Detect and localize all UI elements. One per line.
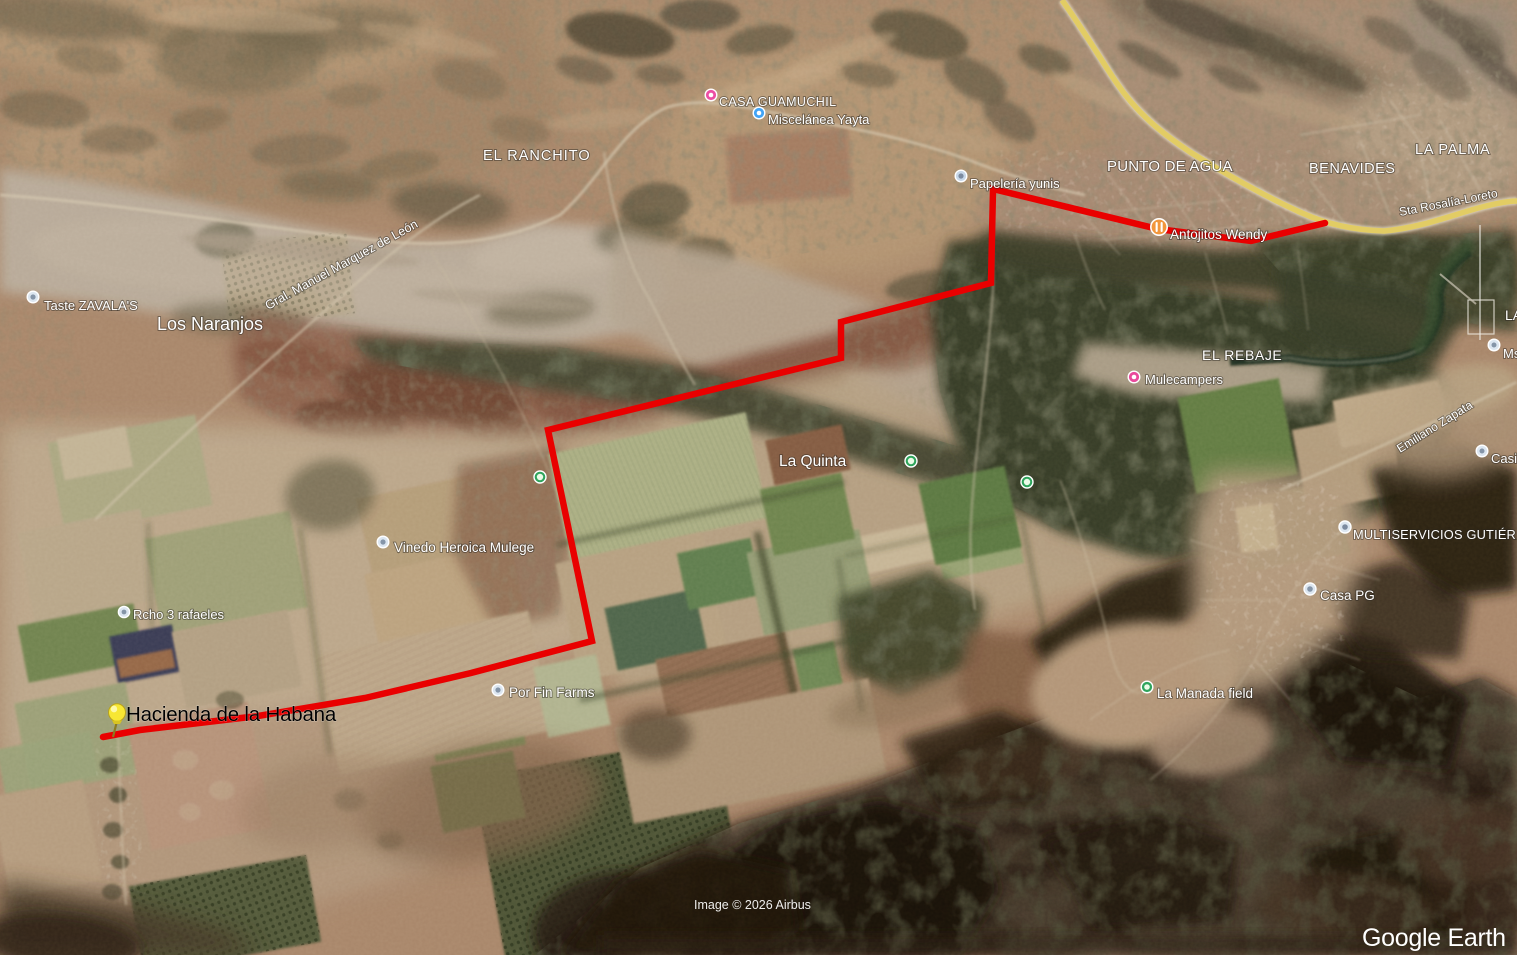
svg-text:MULTISERVICIOS GUTIÉR: MULTISERVICIOS GUTIÉR [1353, 527, 1516, 542]
svg-text:Google Earth: Google Earth [1362, 924, 1506, 952]
svg-text:LA: LA [1505, 307, 1517, 323]
svg-text:Por Fin Farms: Por Fin Farms [509, 685, 595, 700]
svg-text:Rcho 3 rafaeles: Rcho 3 rafaeles [133, 607, 225, 622]
svg-text:Miscelánea Yayta: Miscelánea Yayta [768, 112, 870, 127]
svg-text:Antojitos Wendy: Antojitos Wendy [1170, 227, 1268, 242]
svg-text:BENAVIDES: BENAVIDES [1309, 161, 1395, 177]
svg-text:Vinedo Heroica Mulege: Vinedo Heroica Mulege [394, 540, 534, 555]
svg-text:Hacienda de la Habana: Hacienda de la Habana [126, 703, 337, 726]
svg-text:La Manada field: La Manada field [1157, 686, 1253, 701]
svg-text:CASA GUAMUCHIL: CASA GUAMUCHIL [719, 95, 836, 109]
svg-text:EL RANCHITO: EL RANCHITO [483, 148, 591, 164]
svg-text:LA PALMA: LA PALMA [1415, 142, 1490, 158]
svg-text:Image © 2026 Airbus: Image © 2026 Airbus [694, 898, 811, 912]
svg-text:Mulecampers: Mulecampers [1145, 372, 1224, 387]
svg-text:Taste ZAVALA'S: Taste ZAVALA'S [44, 298, 138, 313]
svg-text:Casi: Casi [1491, 451, 1517, 466]
svg-text:Casa PG: Casa PG [1320, 588, 1375, 603]
svg-text:EL REBAJE: EL REBAJE [1202, 347, 1282, 363]
svg-text:La Quinta: La Quinta [779, 453, 847, 470]
svg-text:Papelería yunis: Papelería yunis [970, 176, 1060, 191]
svg-text:Ms: Ms [1503, 346, 1517, 361]
svg-text:PUNTO DE AGUA: PUNTO DE AGUA [1107, 158, 1233, 175]
svg-text:Los Naranjos: Los Naranjos [157, 314, 263, 334]
